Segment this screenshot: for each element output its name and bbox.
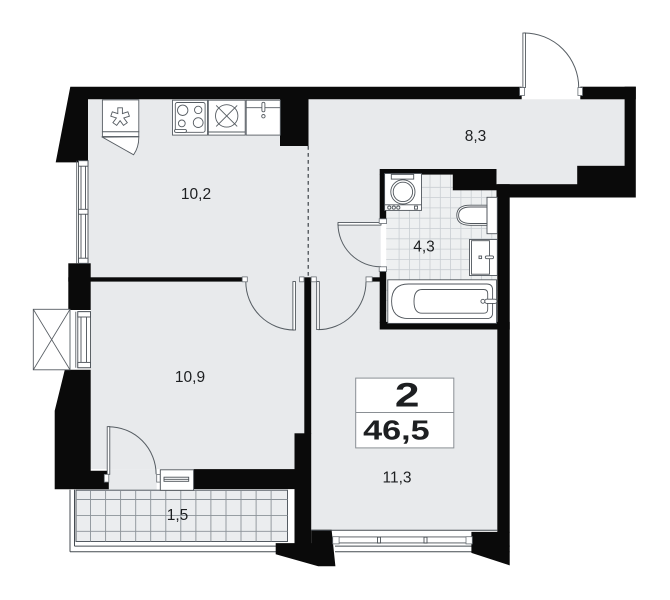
svg-text:10,2: 10,2 (181, 186, 211, 203)
svg-text:10,9: 10,9 (175, 369, 205, 386)
svg-text:8,3: 8,3 (465, 128, 487, 145)
svg-text:1,5: 1,5 (167, 507, 189, 524)
svg-text:2: 2 (395, 376, 420, 414)
svg-text:4,3: 4,3 (413, 239, 435, 256)
svg-text:11,3: 11,3 (382, 470, 411, 487)
svg-text:46,5: 46,5 (363, 414, 430, 445)
